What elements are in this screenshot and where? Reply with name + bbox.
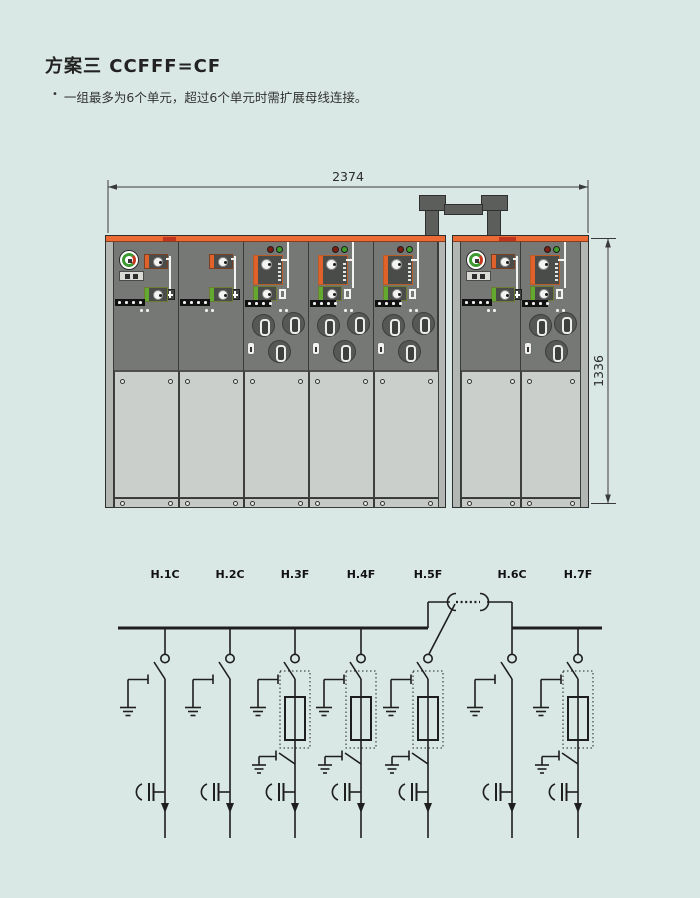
mimic-line (417, 242, 419, 288)
feeder-symbol-c (185, 654, 234, 838)
green-tag (384, 287, 388, 300)
switch-module-upper (383, 255, 413, 285)
screw (570, 379, 575, 384)
single-line-diagram: H.1C H.2C H.3F H.4F H.5F H.6C H.7F (118, 568, 602, 838)
screw (510, 379, 515, 384)
screw (250, 379, 255, 384)
gauge-icon (119, 250, 139, 270)
status-led-red (332, 246, 339, 253)
switch-module-lower (253, 286, 277, 301)
cabinet-unit-f4 (521, 242, 581, 508)
switch-knob (500, 290, 510, 300)
switch-knob (153, 290, 163, 300)
side-panel (580, 242, 588, 507)
unit-upper-panel (309, 242, 374, 370)
fuse-bushing (545, 340, 568, 363)
cable-capsule (377, 342, 385, 355)
status-led-red (267, 246, 274, 253)
technical-drawing (0, 0, 700, 520)
vent-dots (556, 309, 559, 312)
cabinet-unit-f1 (244, 242, 309, 508)
switch-module-lower (383, 286, 407, 301)
feeder-symbol-c (467, 654, 516, 838)
screw (233, 379, 238, 384)
bridge-bar (444, 204, 483, 215)
status-led-green (276, 246, 283, 253)
fuse-bushing (347, 312, 370, 335)
feeder-symbol-f (383, 654, 443, 838)
cable-capsule (524, 342, 532, 355)
mimic-line (231, 258, 236, 260)
unit-upper-panel (179, 242, 244, 370)
screw (185, 501, 190, 506)
switch-module-upper (530, 255, 560, 285)
switch-module-upper (144, 254, 168, 269)
feeder-label: H.4F (347, 568, 376, 581)
switch-knob (500, 257, 510, 267)
orange-tag (492, 255, 496, 268)
screw (467, 501, 472, 506)
switch-knob (218, 257, 228, 267)
switch-knob (262, 289, 272, 299)
cabinet-base (461, 498, 521, 508)
unit-upper-panel (521, 242, 581, 370)
switch-knob (539, 289, 549, 299)
label-strip (555, 263, 558, 281)
switch-module-upper (253, 255, 283, 285)
switch-module-upper (318, 255, 348, 285)
cable-compartment-door (114, 370, 179, 498)
feeder-symbol-c (120, 654, 169, 838)
screw (527, 379, 532, 384)
gauge-icon (466, 250, 486, 270)
feeder-symbol-f (250, 654, 310, 838)
switch-module-lower (144, 287, 168, 302)
unit-upper-panel (114, 242, 179, 370)
indicator-strip (522, 300, 548, 307)
mimic-line (352, 242, 354, 288)
fuse-bushing (412, 312, 435, 335)
cabinet-base (114, 498, 179, 508)
cabinet-unit-c2 (179, 242, 244, 508)
label-strip (343, 263, 346, 281)
mimic-line (513, 258, 518, 260)
vent-dots (344, 309, 347, 312)
screw (467, 379, 472, 384)
cable-compartment-door (179, 370, 244, 498)
status-led-green (553, 246, 560, 253)
screw (120, 379, 125, 384)
brand-badge (163, 237, 176, 241)
screw (380, 501, 385, 506)
label-strip (408, 263, 411, 281)
side-panel (106, 242, 114, 507)
cabinet-unit-c3 (461, 242, 521, 508)
switch-knob (327, 289, 337, 299)
counter-display (466, 271, 491, 281)
cable-compartment-door (309, 370, 374, 498)
status-led-green (341, 246, 348, 253)
switch-knob (392, 289, 402, 299)
screw (380, 379, 385, 384)
indicator-strip (180, 299, 210, 306)
cabinet-group-1 (105, 235, 446, 508)
cable-compartment-door (244, 370, 309, 498)
mimic-line (411, 259, 419, 261)
screw (298, 379, 303, 384)
fuse-bushing (333, 340, 356, 363)
cabinet-base (179, 498, 244, 508)
screw (510, 501, 515, 506)
switch-module-lower (530, 286, 554, 301)
vent-dots (205, 309, 208, 312)
green-tag (210, 288, 214, 301)
cabinet-base (521, 498, 581, 508)
vent-dots (409, 309, 412, 312)
side-panel (453, 242, 461, 507)
screw (570, 501, 575, 506)
mimic-line (281, 259, 289, 261)
mimic-line (564, 242, 566, 288)
green-tag (319, 287, 323, 300)
orange-tag (319, 256, 323, 284)
bus-link-symbol (428, 594, 512, 655)
switch-knob (391, 259, 402, 270)
feeder-symbol-f (316, 654, 376, 838)
screw (185, 379, 190, 384)
switch-module-lower (491, 287, 515, 302)
bridge-post-left (425, 210, 439, 237)
cabinet-base (374, 498, 439, 508)
feeder-label: H.2C (215, 568, 244, 581)
label-strip (278, 263, 281, 281)
brand-badge (499, 237, 516, 241)
indicator-strip (375, 300, 401, 307)
screw (428, 379, 433, 384)
vent-dots (279, 309, 282, 312)
mimic-line (234, 256, 236, 293)
cabinet-group-2 (452, 235, 589, 508)
fuse-bushing (268, 340, 291, 363)
mimic-line (516, 256, 518, 293)
orange-tag (145, 255, 149, 268)
switch-knob (538, 259, 549, 270)
cable-capsule (247, 342, 255, 355)
catalog-page: { "page": { "title": "方案三 CCFFF=CF", "bu… (0, 0, 700, 898)
cabinet-unit-f3 (374, 242, 439, 508)
screw (527, 501, 532, 506)
screw (363, 501, 368, 506)
unit-upper-panel (244, 242, 309, 370)
screw (428, 501, 433, 506)
green-tag (492, 288, 496, 301)
fuse-bushing (529, 314, 552, 337)
feeder-label: H.6C (497, 568, 526, 581)
counter-display (119, 271, 144, 281)
mimic-line (169, 256, 171, 293)
fuse-mimic-icon (279, 289, 286, 299)
cabinet-unit-c1 (114, 242, 179, 508)
switch-module-upper (491, 254, 515, 269)
feeder-label: H.5F (414, 568, 443, 581)
cabinet-base (309, 498, 374, 508)
fuse-bushing (282, 312, 305, 335)
fuse-bushing (554, 312, 577, 335)
screw (298, 501, 303, 506)
screw (250, 501, 255, 506)
indicator-strip (462, 299, 492, 306)
orange-tag (531, 256, 535, 284)
switch-module-lower (209, 287, 233, 302)
mimic-line (287, 242, 289, 288)
green-tag (531, 287, 535, 300)
green-tag (145, 288, 149, 301)
screw (233, 501, 238, 506)
cable-compartment-door (461, 370, 521, 498)
feeder-label: H.1C (150, 568, 179, 581)
indicator-strip (115, 299, 145, 306)
feeder-label: H.7F (564, 568, 593, 581)
mimic-line (166, 258, 171, 260)
cable-capsule (312, 342, 320, 355)
cable-compartment-door (374, 370, 439, 498)
cabinet-base (244, 498, 309, 508)
switch-module-lower (318, 286, 342, 301)
cabinet-unit-f2 (309, 242, 374, 508)
screw (168, 501, 173, 506)
fuse-mimic-icon (556, 289, 563, 299)
unit-upper-panel (374, 242, 439, 370)
fuse-bushing (382, 314, 405, 337)
mimic-line (346, 259, 354, 261)
green-tag (254, 287, 258, 300)
mimic-line (558, 259, 566, 261)
fuse-bushing (252, 314, 275, 337)
cable-compartment-door (521, 370, 581, 498)
fuse-mimic-icon (409, 289, 416, 299)
bridge-cap-right (481, 195, 508, 211)
orange-tag (384, 256, 388, 284)
screw (168, 379, 173, 384)
fuse-bushing (398, 340, 421, 363)
switch-knob (153, 257, 163, 267)
bridge-cap-left (419, 195, 446, 211)
screw (315, 501, 320, 506)
unit-upper-panel (461, 242, 521, 370)
status-led-red (397, 246, 404, 253)
orange-tag (210, 255, 214, 268)
screw (363, 379, 368, 384)
switch-knob (261, 259, 272, 270)
vent-dots (487, 309, 490, 312)
indicator-strip (245, 300, 271, 307)
bridge-post-right (487, 210, 501, 237)
switch-module-upper (209, 254, 233, 269)
switch-knob (326, 259, 337, 270)
feeder-label: H.3F (281, 568, 310, 581)
screw (315, 379, 320, 384)
orange-tag (254, 256, 258, 284)
fuse-mimic-icon (344, 289, 351, 299)
status-led-red (544, 246, 551, 253)
fuse-bushing (317, 314, 340, 337)
feeder-symbol-f (533, 654, 593, 838)
screw (120, 501, 125, 506)
vent-dots (140, 309, 143, 312)
status-led-green (406, 246, 413, 253)
switch-knob (218, 290, 228, 300)
indicator-strip (310, 300, 336, 307)
